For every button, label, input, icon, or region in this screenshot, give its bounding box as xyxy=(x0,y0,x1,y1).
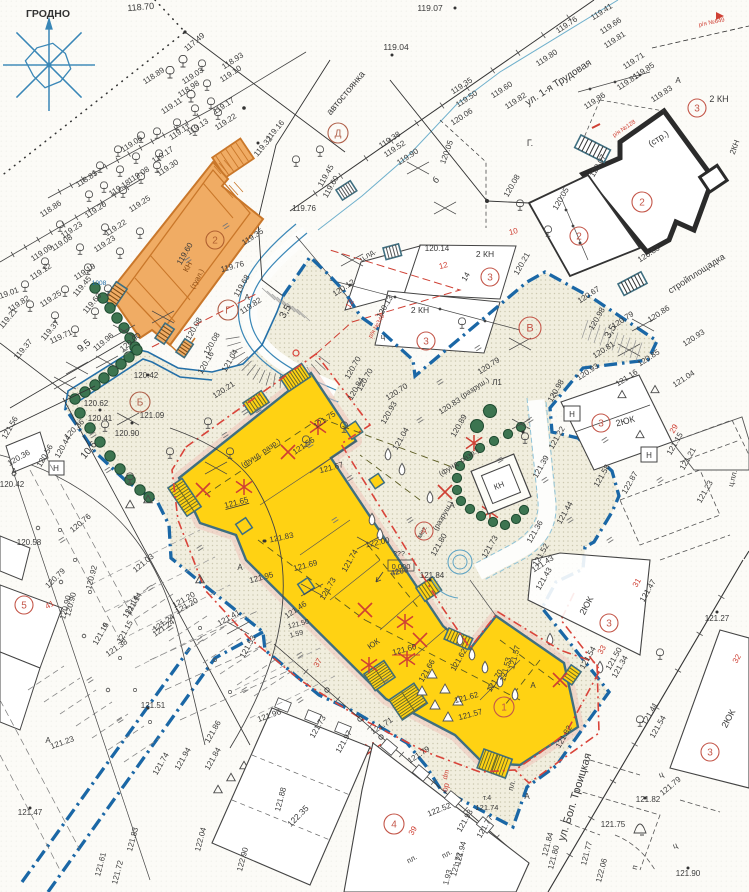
svg-text:119.07: 119.07 xyxy=(417,3,443,13)
svg-text:120.58: 120.58 xyxy=(17,538,42,547)
svg-text:Б: Б xyxy=(137,397,144,408)
svg-text:120.41: 120.41 xyxy=(88,414,113,423)
svg-text:А: А xyxy=(530,681,536,690)
svg-text:Г.: Г. xyxy=(527,138,533,148)
svg-text:4: 4 xyxy=(391,819,397,830)
svg-text:121.27: 121.27 xyxy=(705,614,730,623)
svg-text:121.90: 121.90 xyxy=(676,869,701,878)
svg-text:120.42: 120.42 xyxy=(134,371,159,380)
svg-text:3: 3 xyxy=(423,336,429,347)
svg-text:3: 3 xyxy=(487,272,493,283)
svg-text:т.4: т.4 xyxy=(483,795,491,802)
svg-text:А: А xyxy=(11,467,17,476)
svg-text:5: 5 xyxy=(21,600,27,611)
svg-text:1008: 1008 xyxy=(92,280,107,287)
svg-text:120.90: 120.90 xyxy=(115,429,140,438)
svg-text:121.74: 121.74 xyxy=(476,803,499,812)
svg-text:???: ??? xyxy=(393,551,405,558)
svg-text:А: А xyxy=(45,736,51,745)
svg-text:119.04: 119.04 xyxy=(383,42,409,52)
svg-text:2 КН: 2 КН xyxy=(709,94,728,104)
svg-text:2 КН: 2 КН xyxy=(411,305,429,315)
svg-text:Д: Д xyxy=(335,128,342,139)
svg-text:В: В xyxy=(526,323,533,335)
svg-text:2: 2 xyxy=(212,235,218,246)
svg-text:2 КН: 2 КН xyxy=(476,249,494,259)
svg-text:2: 2 xyxy=(576,231,582,242)
svg-text:А: А xyxy=(524,792,530,801)
svg-text:3: 3 xyxy=(707,747,713,758)
svg-text:А: А xyxy=(675,76,681,85)
svg-text:121.84: 121.84 xyxy=(420,571,445,580)
svg-text:ГРОДНО: ГРОДНО xyxy=(26,8,70,20)
svg-text:120.42: 120.42 xyxy=(0,480,25,489)
svg-text:Н: Н xyxy=(646,451,652,460)
svg-text:2: 2 xyxy=(639,197,645,208)
svg-text:Н: Н xyxy=(569,410,575,419)
svg-text:121.51: 121.51 xyxy=(141,701,166,710)
svg-text:Л1: Л1 xyxy=(492,378,502,387)
svg-text:ц: ц xyxy=(381,332,386,341)
svg-text:А: А xyxy=(237,563,243,572)
svg-text:3: 3 xyxy=(606,618,612,629)
svg-text:119.76: 119.76 xyxy=(292,204,316,213)
svg-text:121.82: 121.82 xyxy=(636,795,661,804)
svg-text:ц: ц xyxy=(488,683,492,690)
svg-text:121.09: 121.09 xyxy=(140,411,165,420)
svg-text:3: 3 xyxy=(598,418,604,429)
svg-text:А: А xyxy=(421,526,427,536)
svg-text:3: 3 xyxy=(694,103,700,114)
svg-text:Г: Г xyxy=(225,305,231,316)
svg-text:А: А xyxy=(244,293,250,302)
svg-text:120.14: 120.14 xyxy=(425,244,450,253)
svg-text:Н: Н xyxy=(53,464,59,473)
svg-text:120.62: 120.62 xyxy=(84,399,109,408)
svg-text:1: 1 xyxy=(501,702,507,713)
svg-text:121.75: 121.75 xyxy=(601,820,626,829)
